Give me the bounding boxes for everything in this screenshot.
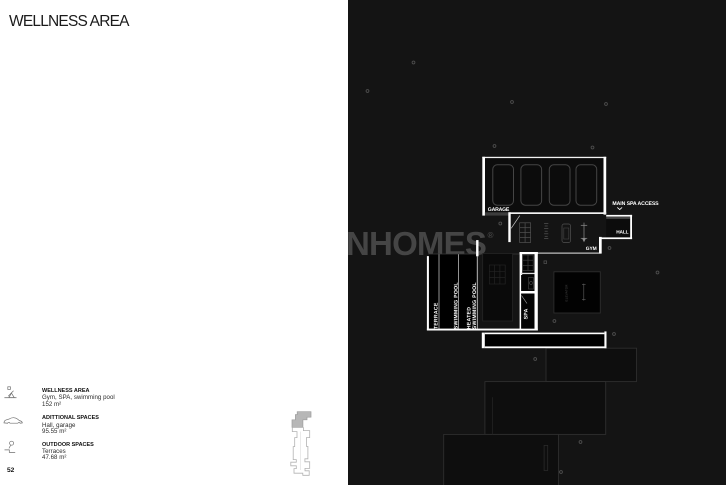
svg-text:SPA: SPA (523, 308, 529, 319)
svg-text:ELEVATOR: ELEVATOR (564, 284, 568, 302)
svg-text:TERRACE: TERRACE (433, 302, 439, 329)
svg-text:SWIMMING POOL: SWIMMING POOL (472, 282, 478, 330)
svg-text:MAIN SPA ACCESS: MAIN SPA ACCESS (612, 201, 659, 207)
svg-text:GARAGE: GARAGE (487, 207, 509, 213)
svg-text:SWIMMING POOL: SWIMMING POOL (453, 282, 459, 330)
svg-text:GYM: GYM (585, 246, 596, 252)
svg-text:HALL: HALL (616, 229, 628, 235)
